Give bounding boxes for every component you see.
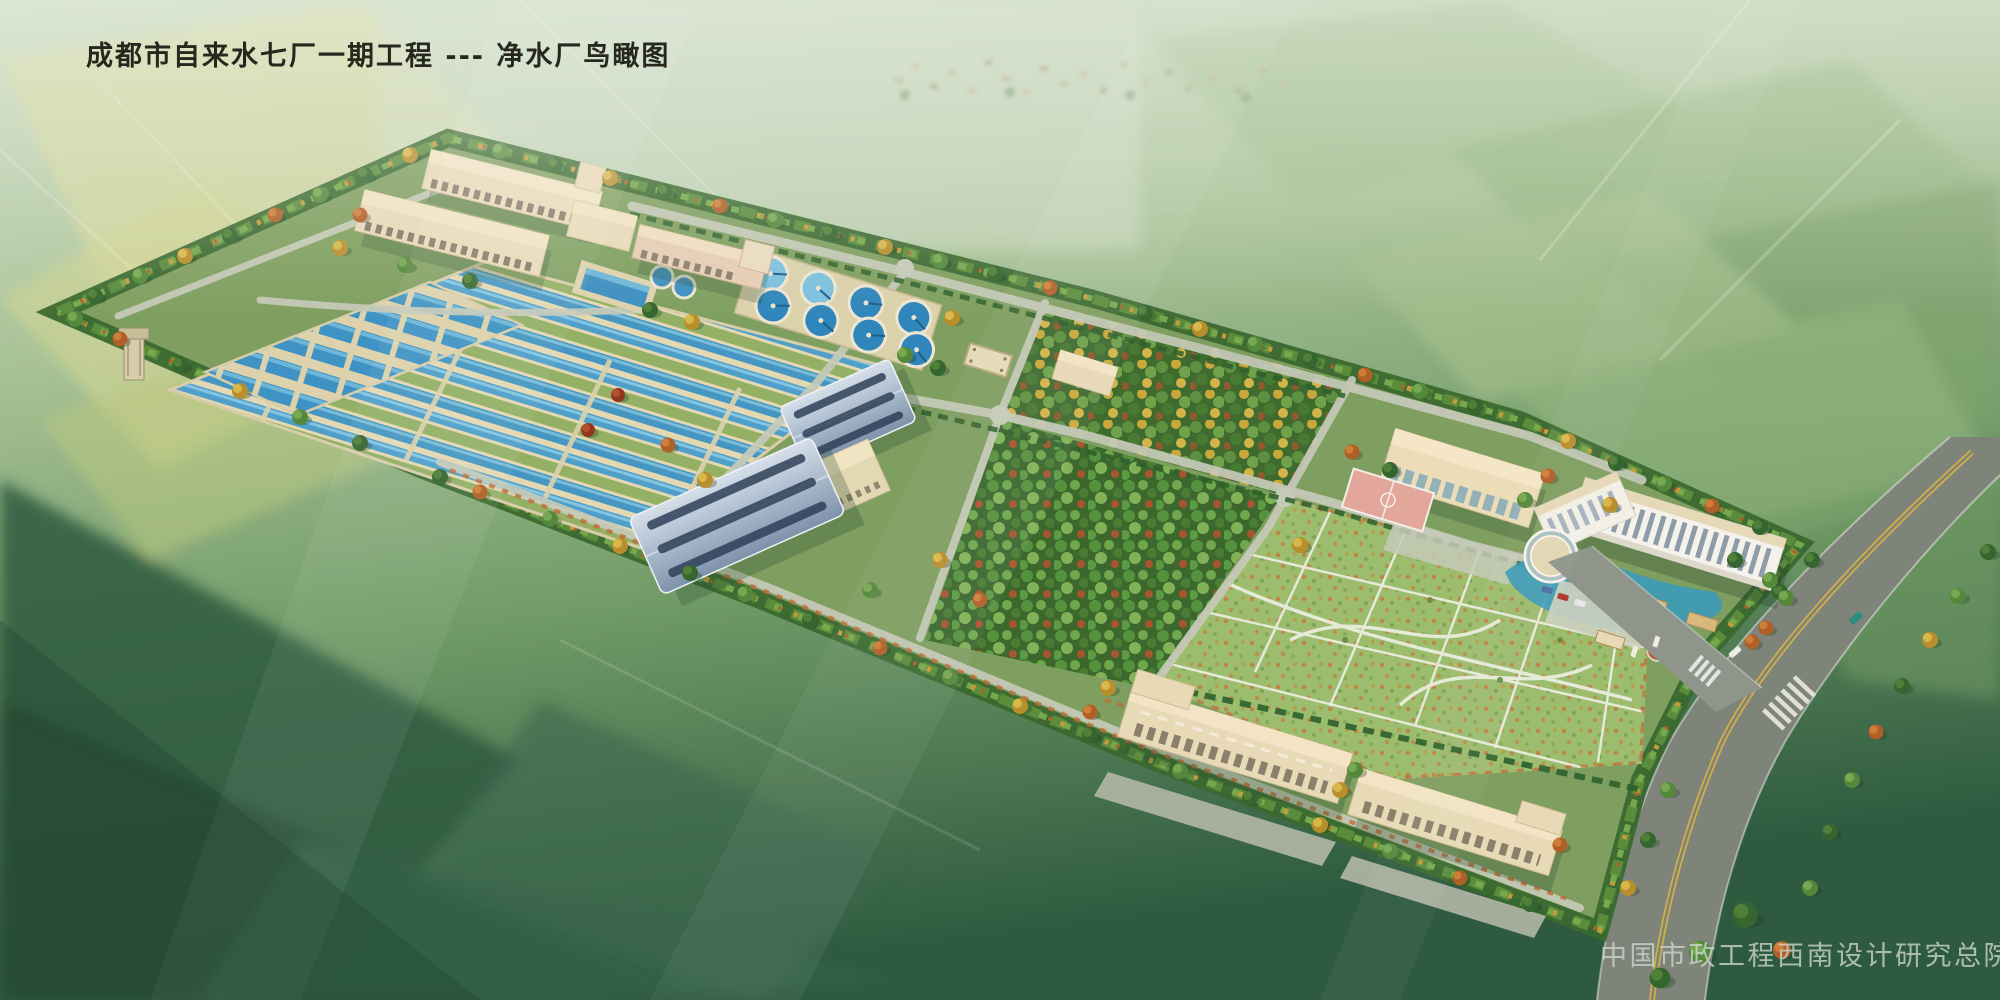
page-title: 成都市自来水七厂一期工程 --- 净水厂鸟瞰图 [86, 34, 670, 73]
aerial-rendering [0, 0, 2000, 1000]
design-institute-watermark: 中国市政工程西南设计研究总院 [1600, 934, 2000, 973]
rendering-canvas: 成都市自来水七厂一期工程 --- 净水厂鸟瞰图 中国市政工程西南设计研究总院 [0, 0, 2000, 1000]
